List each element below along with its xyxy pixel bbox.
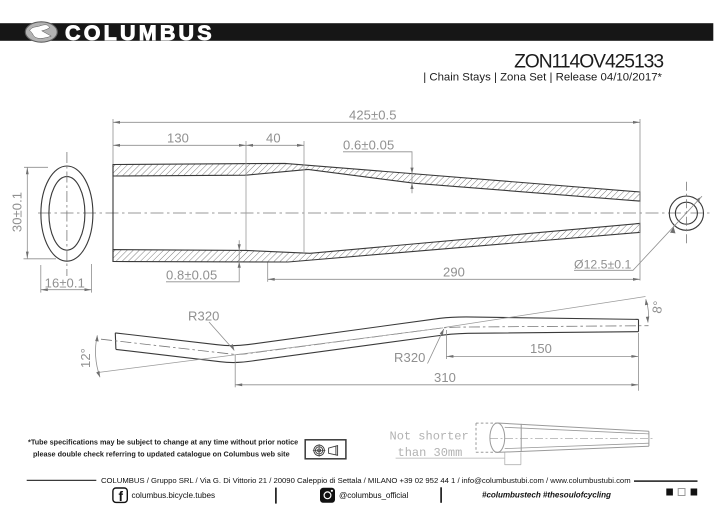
svg-text:130: 130 [167, 131, 189, 146]
svg-text:16±0.1: 16±0.1 [45, 275, 85, 290]
svg-text:30±0.1: 30±0.1 [10, 192, 25, 232]
svg-text:12°: 12° [78, 348, 93, 368]
svg-text:than 30mm: than 30mm [398, 446, 463, 460]
svg-text:R320: R320 [188, 308, 219, 323]
svg-text:40: 40 [266, 131, 281, 146]
svg-text:ZON114OV425133: ZON114OV425133 [514, 52, 663, 73]
svg-text:| Chain Stays | Zona Set |: | Chain Stays | Zona Set | Release 04/10… [423, 72, 662, 84]
svg-text:290: 290 [443, 264, 465, 279]
svg-text:0.8±0.05: 0.8±0.05 [166, 268, 217, 283]
svg-text:f: f [119, 489, 124, 504]
svg-text:columbus.bicycle.tubes: columbus.bicycle.tubes [132, 491, 216, 500]
svg-text:0.6±0.05: 0.6±0.05 [343, 137, 394, 152]
svg-text:*Tube specifications may be su: *Tube specifications may be subject to c… [28, 437, 298, 446]
svg-text:R320: R320 [394, 350, 425, 365]
svg-text:Ø12.5±0.1: Ø12.5±0.1 [574, 258, 632, 272]
svg-text:150: 150 [530, 341, 552, 356]
svg-text:please double check referring: please double check referring to updated… [33, 450, 290, 459]
svg-text:COLUMBUS: COLUMBUS [65, 21, 215, 45]
svg-text:310: 310 [434, 370, 456, 385]
svg-text:8°: 8° [649, 300, 666, 315]
svg-text:@columbus_official: @columbus_official [339, 491, 408, 500]
svg-text:Not shorter: Not shorter [390, 430, 469, 444]
svg-text:COLUMBUS / Gruppo SRL / Via: COLUMBUS / Gruppo SRL / Via G. Di Vittor… [101, 476, 631, 485]
svg-text:#columbustech #thesoulofcycli: #columbustech #thesoulofcycling [482, 490, 611, 499]
svg-text:425±0.5: 425±0.5 [349, 108, 397, 123]
